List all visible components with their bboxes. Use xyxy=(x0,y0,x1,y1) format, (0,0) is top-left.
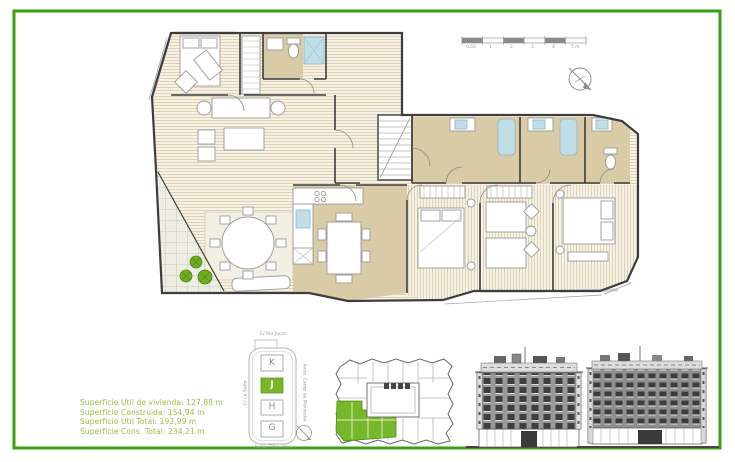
scale-tick-4: 4 xyxy=(552,45,555,50)
elevation-side xyxy=(577,346,719,447)
street-label-left: C/ La Safor xyxy=(244,363,249,423)
floor-plan xyxy=(148,28,642,306)
scale-tick-5: 5 m xyxy=(571,45,580,50)
footprint-plan xyxy=(336,359,453,444)
street-label-right: Avda. Camp de Morvedre xyxy=(302,360,307,426)
scale-tick-1: 1 xyxy=(489,45,492,50)
summary-line-construida: Superficie Construida: 154,94 m xyxy=(80,408,223,418)
scale-tick-3: 3 xyxy=(531,45,534,50)
keyplan-unit-h: H xyxy=(261,402,283,412)
surface-summary: Superficie Util de vivienda: 127,88 m Su… xyxy=(80,398,223,437)
keyplan-unit-k: K xyxy=(261,358,283,368)
summary-line-cons-total: Superficie Cons. Total: 234,21 m xyxy=(80,427,223,437)
street-label-top: C/ Río Jucar xyxy=(230,332,316,337)
elevation-front xyxy=(466,347,592,447)
floorplan-sheet: { "frame": { "border_color": "#3aa00f" }… xyxy=(0,0,735,462)
street-label-bottom: Avda. Tibesetles xyxy=(228,445,318,450)
keyplan-compass-icon xyxy=(297,426,312,441)
summary-line-util-vivienda: Superficie Util de vivienda: 127,88 m xyxy=(80,398,223,408)
drawing-canvas xyxy=(0,0,735,462)
scale-tick-0: 0.50 xyxy=(466,45,476,50)
keyplan-unit-g: G xyxy=(261,423,283,433)
scale-tick-2: 2 xyxy=(510,45,513,50)
north-compass-icon xyxy=(569,68,591,90)
scale-bar xyxy=(462,36,586,45)
keyplan-unit-j-highlighted: J xyxy=(261,380,283,390)
summary-line-util-total: Superficie Util Total: 192,99 m xyxy=(80,417,223,427)
